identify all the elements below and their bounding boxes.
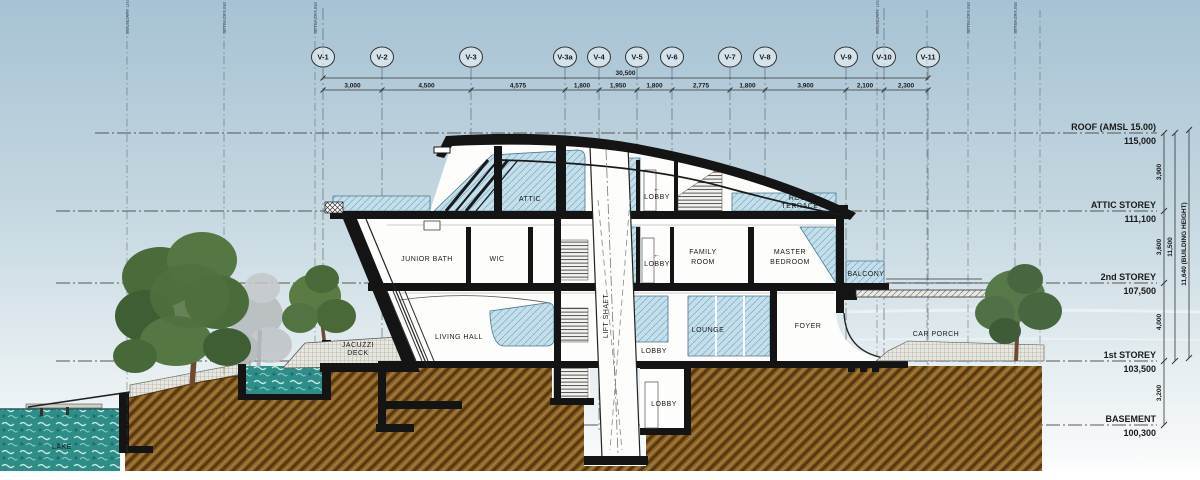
room-label-family: FAMILY bbox=[689, 249, 716, 256]
segment-dim-value: 1,800 bbox=[574, 83, 591, 90]
grid-bubble-label: V-7 bbox=[724, 53, 735, 62]
lounge-window-b bbox=[688, 296, 770, 356]
building-section-drawing: BOUNDARY LINESETBACK LINESETBACK LINEBOU… bbox=[0, 0, 1200, 480]
grid-bubble-label: V-11 bbox=[920, 53, 935, 62]
lake-wall-footing bbox=[119, 446, 153, 453]
room-label-room: ROOM bbox=[691, 259, 715, 266]
section-drawing-stage: BOUNDARY LINESETBACK LINESETBACK LINEBOU… bbox=[0, 0, 1200, 480]
room-label-roof: ROOF bbox=[789, 195, 811, 202]
bottom-margin bbox=[0, 471, 1200, 480]
room-label-car-porch: CAR PORCH bbox=[913, 331, 960, 338]
grid-bubble-label: V-2 bbox=[376, 53, 387, 62]
lot-line-label: SETBACK LINE bbox=[313, 2, 318, 34]
room-label-lobby: LOBBY bbox=[644, 261, 670, 268]
room-label-wic: WIC bbox=[489, 256, 504, 263]
level-name: BASEMENT bbox=[1105, 414, 1156, 424]
level-name: ATTIC STOREY bbox=[1091, 200, 1156, 210]
grid-bubble-label: V-5 bbox=[631, 53, 642, 62]
room-label--: ← bbox=[653, 252, 661, 259]
room-label-lobby: LOBBY bbox=[644, 194, 670, 201]
foundation-wall bbox=[378, 363, 386, 430]
grid-bubble-label: V-8 bbox=[759, 53, 770, 62]
lift-pit-floor bbox=[584, 456, 648, 465]
grid-bubble-label: V-6 bbox=[666, 53, 677, 62]
grid-bubble-label: V-3a bbox=[557, 53, 573, 62]
room-label-terrace: TERRACE bbox=[782, 203, 819, 210]
segment-dim-value: 3,000 bbox=[344, 83, 361, 90]
level-name: ROOF (AMSL 15.00) bbox=[1071, 122, 1156, 132]
grid-bubble-label: V-3 bbox=[465, 53, 476, 62]
basement-lobby-floor bbox=[640, 428, 691, 435]
room-label-attic: ATTIC bbox=[519, 196, 541, 203]
segment-dim-value: 2,775 bbox=[693, 83, 710, 90]
living-hall-window bbox=[490, 303, 554, 346]
room-label-jacuzzi: JACUZZI bbox=[342, 342, 374, 349]
foundation-step bbox=[378, 401, 462, 409]
level-elevation: 115,000 bbox=[1124, 136, 1156, 146]
grid-bubble-label: V-1 bbox=[317, 53, 328, 62]
roof-column bbox=[556, 140, 566, 212]
room-label-living-hall: LIVING HALL bbox=[435, 334, 483, 341]
segment-dim-value: 4,575 bbox=[510, 83, 527, 90]
room-label-foyer: FOYER bbox=[795, 323, 822, 330]
lot-line-label: SETBACK LINE bbox=[966, 2, 971, 34]
segment-dim-value: 2,300 bbox=[898, 83, 915, 90]
overall-height-value: 11,500 bbox=[1167, 237, 1174, 257]
level-name: 1st STOREY bbox=[1104, 350, 1156, 360]
roof-eave-step bbox=[434, 147, 450, 153]
lounge-window-a bbox=[632, 296, 668, 342]
stair-wall bbox=[554, 219, 561, 402]
stair-1st bbox=[560, 308, 588, 342]
deck-base bbox=[320, 363, 412, 372]
attic-slab bbox=[330, 211, 846, 219]
room-label-deck: DECK bbox=[347, 350, 368, 357]
level-elevation: 103,500 bbox=[1123, 364, 1156, 374]
segment-dim-value: 2,100 bbox=[857, 83, 874, 90]
level-elevation: 111,100 bbox=[1124, 214, 1156, 224]
building-height-value: 11,640 (BUILDING HEIGHT) bbox=[1181, 202, 1188, 285]
room-label-lobby: LOBBY bbox=[651, 401, 677, 408]
canopy-anchor bbox=[843, 288, 857, 300]
room-label-lobby: LOBBY bbox=[641, 348, 667, 355]
grid-bubble-label: V-10 bbox=[876, 53, 891, 62]
segment-dim-value: 1,800 bbox=[739, 83, 756, 90]
room-label-bedroom: BEDROOM bbox=[770, 259, 810, 266]
foundation-footing bbox=[376, 424, 414, 432]
vdim-value: 3,600 bbox=[1156, 238, 1163, 255]
room-label-junior-bath: JUNIOR BATH bbox=[401, 256, 453, 263]
grid-bubble-label: V-9 bbox=[840, 53, 851, 62]
level-name: 2nd STOREY bbox=[1101, 272, 1156, 282]
vdim-value: 3,200 bbox=[1156, 384, 1163, 401]
room-label--: ← bbox=[653, 186, 661, 193]
lot-line-label: BOUNDARY LINE bbox=[875, 0, 880, 34]
basement-lobby-wall bbox=[684, 366, 691, 432]
room-label-balcony: BALCONY bbox=[848, 271, 885, 278]
segment-dim-value: 1,800 bbox=[646, 83, 663, 90]
lot-line-label: SETBACK LINE bbox=[1013, 2, 1018, 34]
segment-dim-value: 3,900 bbox=[797, 83, 814, 90]
lot-line-label: SETBACK LINE bbox=[222, 2, 227, 34]
roof-column bbox=[494, 146, 502, 212]
vdim-value: 3,900 bbox=[1156, 163, 1163, 180]
right-wall bbox=[836, 207, 844, 313]
room-label-lift-shaft: LIFT SHAFT bbox=[603, 294, 610, 338]
level-elevation: 100,300 bbox=[1123, 428, 1156, 438]
vdim-value: 4,000 bbox=[1156, 313, 1163, 330]
lake-wall bbox=[119, 393, 129, 453]
grid-bubble-label: V-4 bbox=[593, 53, 605, 62]
slab-cut-symbol bbox=[325, 202, 343, 213]
room-label-lake: LAKE bbox=[52, 444, 72, 451]
stair-2nd bbox=[560, 240, 588, 280]
segment-dim-value: 4,500 bbox=[418, 83, 435, 90]
room-label-lounge: LOUNGE bbox=[692, 327, 725, 334]
lot-line-label: BOUNDARY LINE bbox=[125, 0, 130, 34]
segment-dim-value: 1,950 bbox=[610, 83, 627, 90]
level-elevation: 107,500 bbox=[1123, 286, 1156, 296]
overall-dim-value: 30,500 bbox=[616, 70, 636, 77]
attic-glass-band bbox=[333, 196, 430, 211]
room-label-master: MASTER bbox=[774, 249, 806, 256]
